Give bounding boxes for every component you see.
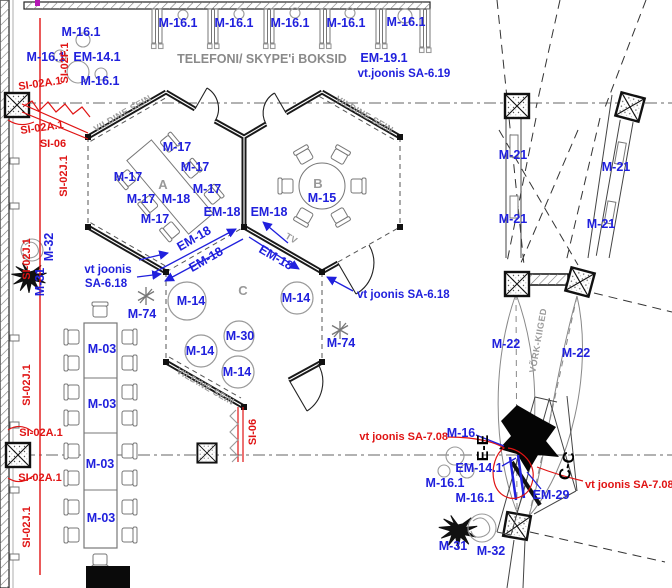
label-m18: M-18 — [162, 192, 191, 206]
vildine-sein-a: VILDINE SEIN — [92, 93, 153, 134]
label-m32-left: M-32 — [42, 233, 56, 262]
label-em14-open: EM-14.1 — [73, 50, 120, 64]
revision-tick — [35, 0, 40, 6]
label-si02j1-1: SI-02J.1 — [58, 155, 70, 197]
label-m16-booth-2: M-16.1 — [215, 16, 254, 30]
label-em18-2: EM-18 — [251, 205, 288, 219]
label-m14-2: M-14 — [282, 291, 311, 305]
label-em18-1: EM-18 — [204, 205, 241, 219]
label-m03-3: M-03 — [86, 457, 115, 471]
label-si02j1-3: SI-02J.1 — [21, 364, 33, 406]
label-m03-4: M-03 — [87, 511, 116, 525]
vork-kiiged-label: VÕRK-KIIGED — [527, 307, 548, 373]
label-si02j1-2: SI-02J.1 — [21, 238, 33, 280]
label-m16-open-1: M-16.1 — [62, 25, 101, 39]
label-em19: EM-19.1 — [360, 51, 407, 65]
label-m16-booth-5: M-16.1 — [387, 15, 426, 29]
tv-label: TV — [284, 231, 300, 246]
label-m17-1: M-17 — [163, 140, 192, 154]
label-m17-6: M-17 — [141, 212, 170, 226]
door-room-b — [263, 93, 286, 124]
label-em14-br: EM-14.1 — [455, 461, 502, 475]
label-m74-right: M-74 — [327, 336, 356, 350]
room-c-letter: C — [238, 283, 248, 298]
vildine-sein-b: VILDINE SEIN — [334, 94, 395, 135]
door-room-a — [195, 88, 219, 121]
label-em29: EM-29 — [533, 488, 570, 502]
room-a-letter: A — [158, 177, 168, 192]
room-b-letter: B — [313, 176, 322, 191]
plant-m74-left — [138, 287, 154, 305]
section-e-label: E-E — [475, 434, 492, 461]
label-si02j1-4: SI-02J.1 — [21, 506, 33, 548]
label-m21-2: M-21 — [499, 212, 528, 226]
ref-sa618-left-line2: SA-6.18 — [85, 278, 128, 290]
label-m03-1: M-03 — [88, 342, 117, 356]
ref-sa618-left-line1: vt joonis — [84, 264, 131, 276]
label-si06-bottom: SI-06 — [247, 419, 259, 445]
ref-sa708-left: vt joonis SA-7.08 — [359, 431, 448, 443]
label-m161-br-1: M-16.1 — [426, 476, 465, 490]
booths-title: TELEFONI/ SKYPE'i BOKSID — [177, 52, 347, 66]
label-m16-booth-4: M-16.1 — [327, 16, 366, 30]
label-m22-2: M-22 — [562, 346, 591, 360]
label-m31-br: M-31 — [439, 539, 468, 553]
label-m22-1: M-22 — [492, 337, 521, 351]
label-m30: M-30 — [226, 329, 255, 343]
label-si02a1-3: SI-02A.1 — [19, 427, 62, 439]
label-m16-booth-1: M-16.1 — [159, 16, 198, 30]
label-m15: M-15 — [308, 191, 337, 205]
label-m32-br: M-32 — [477, 544, 506, 558]
label-m16-br: M-16 — [447, 426, 476, 440]
label-m14-3: M-14 — [186, 344, 215, 358]
label-m17-3: M-17 — [114, 170, 143, 184]
label-m21-4: M-21 — [587, 217, 616, 231]
label-m03-2: M-03 — [88, 397, 117, 411]
floor-plan-svg: M-16.1 M-16.1 M-16.1 M-16.1 M-16.1 M-16.… — [0, 0, 672, 588]
sa618-leader-left — [137, 274, 161, 277]
rope-swings — [506, 117, 633, 258]
label-m16-booth-3: M-16.1 — [271, 16, 310, 30]
wall-ties — [10, 158, 19, 560]
label-m74-left: M-74 — [128, 307, 157, 321]
label-si06-top: SI-06 — [40, 138, 66, 150]
label-m17-2: M-17 — [181, 160, 210, 174]
label-m21-3: M-21 — [602, 160, 631, 174]
sa618-leader-right — [327, 277, 353, 291]
label-m161-br-2: M-16.1 — [456, 491, 495, 505]
ref-sa618-right: vt joonis SA-6.18 — [357, 289, 450, 301]
ref-sa708-right: vt joonis SA-7.08 — [585, 479, 672, 491]
label-m14-4: M-14 — [223, 365, 252, 379]
label-m17-5: M-17 — [127, 192, 156, 206]
label-m31-left: M-31 — [33, 268, 47, 297]
ref-sa619: vt.joonis SA-6.19 — [358, 68, 451, 80]
floor-plan-drawing: M-16.1 M-16.1 M-16.1 M-16.1 M-16.1 M-16.… — [0, 0, 672, 588]
label-m14-1: M-14 — [177, 294, 206, 308]
label-m21-1: M-21 — [499, 148, 528, 162]
label-m16-open-3: M-16.1 — [81, 74, 120, 88]
label-si02a1-2: SI-02A.1 — [20, 119, 65, 137]
label-m17-4: M-17 — [193, 182, 222, 196]
cut-element — [86, 566, 130, 588]
label-si02a1-4: SI-02A.1 — [18, 472, 61, 484]
